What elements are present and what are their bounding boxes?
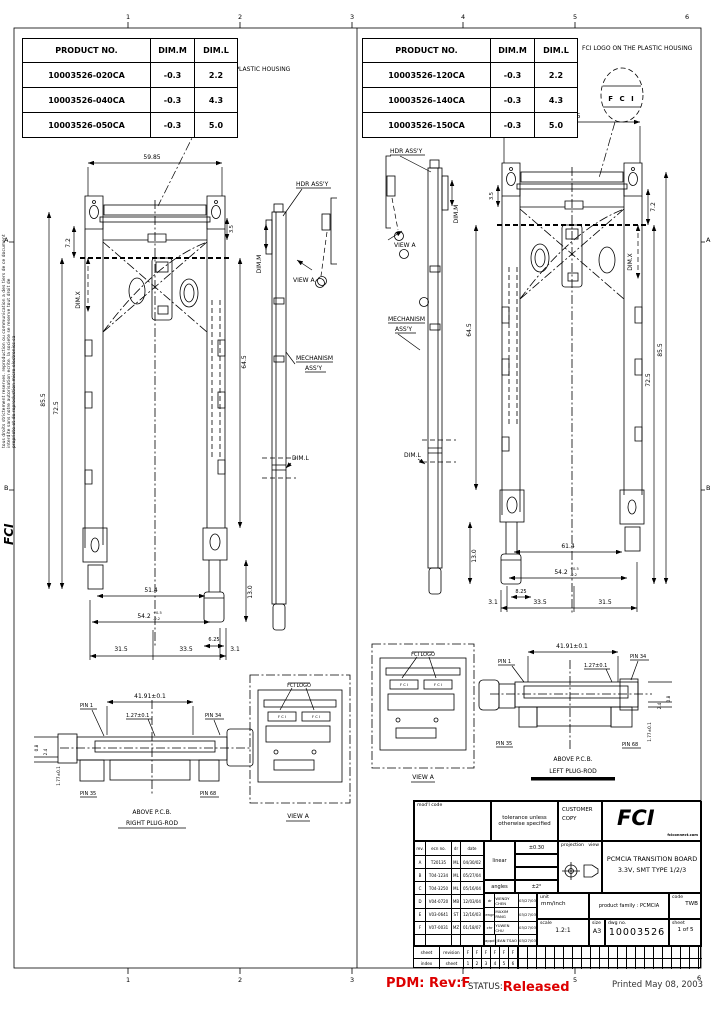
- drawing-title-cell: PCMCIA TRANSITION BOARD 3.3V, SMT TYPE 1…: [602, 841, 702, 893]
- cell-dim-m: -0.3: [491, 63, 535, 87]
- pin-label: PIN 68: [200, 791, 216, 797]
- grid-col-number: 2: [238, 13, 242, 21]
- fci-housing-mark: F C I: [400, 683, 408, 687]
- sheet-revision-row: sheet revision F F F F F F: [414, 946, 702, 958]
- grid-col-number: 2: [238, 976, 242, 984]
- table-row: 10003526-140CA -0.3 4.3: [363, 87, 577, 112]
- approval-row: appd JEAN TSAO 03/27/03: [485, 934, 536, 946]
- grid-row-letter: A: [705, 236, 711, 244]
- fci-housing-mark: F C I: [312, 715, 320, 719]
- rev-cell: E: [415, 909, 426, 921]
- strip-grid-filler: [518, 959, 702, 970]
- strip-rev: F: [491, 947, 500, 958]
- dim-label: DIM.L: [404, 452, 421, 459]
- cell-product: 10003526-120CA: [363, 63, 491, 87]
- mechanism-assy-label: MECHANISM: [296, 355, 333, 362]
- left-main-dimensions: 59.85 7.2 3.5 DIM.X 85.5 72.5 64.5 13.0 …: [40, 154, 254, 660]
- strip-label: sheet: [414, 947, 440, 958]
- dim-label: 72.5: [53, 401, 60, 415]
- dim-label: DIM.M: [453, 205, 460, 224]
- dim-label: 59.85: [143, 154, 160, 161]
- pin-label: PIN 35: [496, 741, 512, 747]
- strip-rev: F: [464, 947, 473, 958]
- left-view-a-detail: F C I F C I FCI LOGO VIEW A: [250, 675, 350, 821]
- linear-value: ±0.30: [516, 842, 557, 853]
- rev-cell: ML: [452, 869, 461, 881]
- right-side-view: HDR ASS'Y DIM.M VIEW A MECHANISM ASS'Y D…: [386, 148, 460, 594]
- rev-cell: ST: [452, 909, 461, 921]
- table-row: 10003526-040CA -0.3 4.3: [23, 87, 237, 112]
- printed-date: Printed May 08, 2003: [612, 980, 703, 990]
- rev-cell: ML: [452, 856, 461, 868]
- rev-cell: 12/16/03: [461, 909, 483, 921]
- table-row: 10003526-150CA -0.3 5.0: [363, 112, 577, 137]
- scale-cell: scale 1.2:1: [537, 919, 589, 946]
- dim-label: 31.5: [114, 646, 128, 653]
- dim-label: 6.25: [208, 637, 219, 643]
- cell-dim-l: 4.3: [195, 88, 237, 112]
- dim-label: 7.2: [650, 202, 657, 212]
- rev-cell: D: [415, 895, 426, 907]
- fci-logo-callout: FCI LOGO: [287, 683, 311, 689]
- dim-label: 3.5: [489, 192, 495, 200]
- hdr-assy-label: HDR ASS'Y: [390, 148, 423, 155]
- col-header-product: PRODUCT NO.: [363, 39, 491, 62]
- size-value: A3: [590, 927, 604, 935]
- dim-label: 1.27±0.1: [126, 713, 149, 719]
- grid-col-number: 5: [573, 13, 577, 21]
- dim-label: 33.5: [533, 599, 547, 606]
- strip-num: 1: [464, 959, 473, 970]
- caption: VIEW A: [287, 813, 310, 820]
- projection-cell: projection view: [558, 841, 602, 893]
- right-rod-detail: 41.91±0.1 PIN 1 1.27±0.1 PIN 34 PIN 35 P…: [479, 643, 672, 781]
- dim-tol: -0.2: [153, 617, 160, 621]
- rev-cell: ML: [452, 882, 461, 894]
- grid-col-number: 3: [350, 13, 354, 21]
- dim-label: DIM.L: [292, 455, 309, 462]
- dim-label: 85.5: [40, 393, 47, 407]
- cell-product: 10003526-150CA: [363, 113, 491, 137]
- size-cell: size A3: [589, 919, 605, 946]
- rev-cell: F: [415, 922, 426, 934]
- caption: RIGHT PLUG-ROD: [126, 820, 178, 827]
- revision-row: D V04-0720 MB 12/03/04: [415, 894, 483, 907]
- spec-table-left: PRODUCT NO. DIM.M DIM.L 10003526-020CA -…: [22, 38, 238, 138]
- approval-role: chr: [485, 922, 495, 934]
- dim-label: 64.5: [466, 323, 473, 337]
- strip-rev: F: [509, 947, 518, 958]
- revision-row: C T04-3250 ML 05/16/04: [415, 881, 483, 894]
- rev-cell: B: [415, 869, 426, 881]
- cell-dim-m: -0.3: [491, 113, 535, 137]
- pin-label: PIN 34: [205, 713, 221, 719]
- unit-cell: unit mm/inch: [537, 893, 589, 919]
- pin-label: PIN 1: [498, 659, 511, 665]
- col-header-dim-l: DIM.L: [535, 39, 577, 62]
- pin-label: PIN 35: [80, 791, 96, 797]
- model-code-label: mod'l code: [417, 803, 442, 808]
- view-label: view: [586, 842, 601, 849]
- caption: VIEW A: [412, 774, 435, 781]
- rev-cell: MB: [452, 895, 461, 907]
- left-side-view: HDR ASS'Y DIM.M VIEW A MECHANISM ASS'Y D…: [256, 181, 337, 630]
- col-header-product: PRODUCT NO.: [23, 39, 151, 62]
- drawing-title-line2: 3.3V, SMT TYPE 1/2/3: [603, 865, 701, 876]
- drawing-sheet: FCI LOGO ON THE PLASTIC HOUSING F C I: [0, 0, 720, 1012]
- unit-value: mm/inch: [538, 901, 588, 907]
- tolerance-heading-cell: tolerance unless otherwise specified: [491, 801, 558, 841]
- revision-row: E V03-0641 ST 12/16/03: [415, 908, 483, 921]
- cell-dim-m: -0.3: [151, 88, 195, 112]
- scale-value: 1.2:1: [538, 927, 588, 934]
- cell-dim-m: -0.3: [491, 88, 535, 112]
- grid-col-number: 6: [685, 13, 689, 21]
- revision-row: B T04-1234 ML 05/27/04: [415, 868, 483, 881]
- cell-dim-l: 5.0: [535, 113, 577, 137]
- dim-label: 61.4: [561, 543, 575, 550]
- dim-label: 31.5: [598, 599, 612, 606]
- cell-dim-l: 2.2: [195, 63, 237, 87]
- fci-logo: FCI: [617, 806, 655, 830]
- revision-row: A T20135 ML 04/30/02: [415, 855, 483, 868]
- caption: LEFT PLUG-ROD: [549, 768, 597, 775]
- fci-logo-callout: FCI LOGO: [411, 652, 435, 658]
- fci-housing-mark: F C I: [608, 95, 635, 103]
- dim-label: 3.1: [488, 599, 498, 606]
- fci-housing-mark: F C I: [278, 715, 286, 719]
- blank-cell: [515, 854, 558, 867]
- rev-cell: T04-3250: [426, 882, 452, 894]
- strip-num: 6: [509, 959, 518, 970]
- status-value: Released: [503, 980, 570, 995]
- rev-header: date: [461, 842, 483, 855]
- strip-rev: F: [482, 947, 491, 958]
- rev-cell: T20135: [426, 856, 452, 868]
- logo-note-label: FCI LOGO ON THE PLASTIC HOUSING: [582, 45, 693, 52]
- mechanism-assy-label: ASS'Y: [395, 326, 412, 333]
- spec-table-right: PRODUCT NO. DIM.M DIM.L 10003526-120CA -…: [362, 38, 578, 138]
- dwg-no-value: 10003526: [606, 927, 668, 938]
- model-code-cell: mod'l code: [414, 801, 491, 841]
- caption: ABOVE P.C.B.: [132, 809, 171, 816]
- dim-label: DIM.X: [75, 291, 82, 309]
- dim-label: 2.4: [657, 702, 662, 709]
- approval-date: 03/27/03: [519, 894, 536, 907]
- strip-rev: F: [473, 947, 482, 958]
- left-main-view: [80, 196, 232, 648]
- sheet-cell: sheet 1 of 5: [669, 919, 702, 946]
- rev-cell: V03-0641: [426, 909, 452, 921]
- dim-tol: +0.5: [570, 567, 579, 571]
- drawing-title-line1: PCMCIA TRANSITION BOARD: [603, 854, 701, 865]
- dim-label: DIM.M: [256, 255, 263, 274]
- dwg-no-cell: dwg no. 10003526: [605, 919, 669, 946]
- code-label: code: [670, 894, 701, 901]
- dim-label: 13.0: [247, 585, 254, 599]
- customer-copy-line: COPY: [562, 815, 598, 824]
- dim-label: 2.4: [43, 748, 48, 755]
- dim-label: 1.27±0.1: [584, 663, 607, 669]
- dim-label: 51.4: [144, 587, 158, 594]
- approval-name: YUWEN CHU: [495, 922, 519, 934]
- dim-label: 72.5: [645, 373, 652, 387]
- table-row: 10003526-120CA -0.3 2.2: [363, 62, 577, 87]
- dim-label: 0.8: [666, 695, 671, 702]
- angles-label-cell: angles: [484, 880, 515, 893]
- cell-product: 10003526-140CA: [363, 88, 491, 112]
- view-a-label: VIEW A: [394, 242, 417, 249]
- projection-symbol-icon: [561, 858, 601, 884]
- right-view-a-detail: F C I F C I FCI LOGO VIEW A: [372, 644, 474, 782]
- dim-label: 41.91±0.1: [134, 693, 166, 700]
- unit-label: unit: [538, 894, 588, 901]
- approval-name: JEAN TSAO: [496, 935, 519, 946]
- grid-col-number: 1: [126, 13, 130, 21]
- strip-num: 5: [500, 959, 509, 970]
- approval-date: 03/27/03: [519, 922, 536, 934]
- pin-label: PIN 34: [630, 654, 646, 660]
- revision-header-row: rev. ecn no. dr date: [415, 842, 483, 855]
- dim-label: 64.5: [241, 355, 248, 369]
- approval-role: appd: [485, 935, 496, 946]
- cell-dim-l: 2.2: [535, 63, 577, 87]
- strip-num: 4: [491, 959, 500, 970]
- dim-label: DIM.X: [627, 253, 634, 271]
- angles-label: angles: [485, 881, 514, 892]
- grid-row-letter: B: [3, 484, 9, 492]
- dim-label: 8.25: [515, 589, 526, 595]
- product-family-cell: product family : PCMCIA: [589, 893, 669, 919]
- dim-label: 33.5: [179, 646, 193, 653]
- dim-label: 85.5: [657, 343, 664, 357]
- grid-col-number: 1: [126, 976, 130, 984]
- rev-header: rev.: [415, 842, 426, 855]
- tolerance-heading: tolerance unless otherwise specified: [492, 802, 557, 840]
- code-cell: code TWB: [669, 893, 702, 919]
- pin-label: PIN 1: [80, 703, 93, 709]
- customer-copy-cell: CUSTOMER COPY: [558, 801, 602, 841]
- col-header-dim-m: DIM.M: [151, 39, 195, 62]
- dim-label: 54.2: [554, 569, 568, 576]
- dim-label: 54.2: [137, 613, 151, 620]
- approval-row: engr MAXIM PANG 03/27/03: [485, 907, 536, 920]
- strip-num: 3: [482, 959, 491, 970]
- strip-grid-filler: [518, 947, 702, 958]
- dim-label: 3.5: [229, 225, 235, 233]
- cell-dim-m: -0.3: [151, 113, 195, 137]
- dim-label: 0.8: [34, 744, 39, 751]
- dim-tol: -0.2: [570, 573, 577, 577]
- grid-row-letter: B: [705, 484, 711, 492]
- strip-label: revision: [440, 947, 464, 958]
- dim-label: 41.91±0.1: [556, 643, 588, 650]
- projection-label: projection: [559, 842, 586, 849]
- dim-label: 1.77±0.1: [647, 722, 652, 742]
- hdr-assy-label: HDR ASS'Y: [296, 181, 329, 188]
- fci-housing-mark: F C I: [434, 683, 442, 687]
- table-row: 10003526-020CA -0.3 2.2: [23, 62, 237, 87]
- grid-col-number: 4: [461, 13, 465, 21]
- sheet-label: sheet: [670, 920, 701, 927]
- approval-date: 03/27/03: [519, 935, 536, 946]
- mechanism-assy-label: MECHANISM: [388, 316, 425, 323]
- approval-role: engr: [485, 908, 495, 920]
- pin-label: PIN 68: [622, 742, 638, 748]
- table-header-row: PRODUCT NO. DIM.M DIM.L: [23, 39, 237, 62]
- col-header-dim-l: DIM.L: [195, 39, 237, 62]
- cell-dim-m: -0.3: [151, 63, 195, 87]
- table-row: 10003526-050CA -0.3 5.0: [23, 112, 237, 137]
- rev-header: ecn no.: [426, 842, 452, 855]
- code-value: TWB: [670, 901, 701, 907]
- right-logo-note: FCI LOGO ON THE PLASTIC HOUSING F C I: [582, 45, 693, 178]
- cell-dim-l: 5.0: [195, 113, 237, 137]
- approval-name: WENDY CHEN: [495, 894, 519, 907]
- fci-logo-cell: FCI fciconnect.com: [602, 801, 702, 841]
- revision-row: F V07-0031 MZ 01/18/07: [415, 921, 483, 934]
- rev-cell: 12/03/04: [461, 895, 483, 907]
- revision-table: rev. ecn no. dr date A T20135 ML 04/30/0…: [414, 841, 484, 946]
- dim-label: 1.77±0.1: [56, 766, 61, 786]
- margin-legal-note: propriete et de reproduction micro elect…: [12, 335, 17, 448]
- index-sheet-row: index sheet 1 2 3 4 5 6: [414, 958, 702, 970]
- dim-label: 3.1: [230, 646, 240, 653]
- linear-value-cell: ±0.30: [515, 841, 558, 854]
- margin-fci-logo: FCI: [2, 524, 16, 545]
- size-label: size: [590, 920, 604, 927]
- rev-cell: A: [415, 856, 426, 868]
- strip-label: index: [414, 959, 440, 970]
- angles-value: ±2°: [516, 881, 557, 892]
- cell-product: 10003526-050CA: [23, 113, 151, 137]
- sheet-index-strip: sheet revision F F F F F F index sheet 1…: [414, 946, 702, 969]
- grid-col-number: 5: [573, 976, 577, 984]
- grid-col-number: 3: [350, 976, 354, 984]
- pdm-revision-status: PDM: Rev:F: [386, 976, 470, 991]
- fci-logo-subtext: fciconnect.com: [667, 833, 698, 837]
- angles-value-cell: ±2°: [515, 880, 558, 893]
- rev-cell: V04-0720: [426, 895, 452, 907]
- rev-cell: MZ: [452, 922, 461, 934]
- rev-cell: 01/18/07: [461, 922, 483, 934]
- revision-row-empty: [415, 934, 483, 946]
- rev-cell: V07-0031: [426, 922, 452, 934]
- strip-label: sheet: [440, 959, 464, 970]
- cell-product: 10003526-040CA: [23, 88, 151, 112]
- scale-label: scale: [538, 920, 588, 927]
- cell-product: 10003526-020CA: [23, 63, 151, 87]
- customer-copy-line: CUSTOMER: [562, 806, 598, 815]
- dwg-no-label: dwg no.: [606, 920, 668, 927]
- dim-tol: +0.5: [153, 611, 162, 615]
- approval-role: dr: [485, 894, 495, 907]
- approval-name: MAXIM PANG: [495, 908, 519, 920]
- rev-header: dr: [452, 842, 461, 855]
- dim-label: 13.0: [471, 549, 478, 563]
- release-status: STATUS:Released: [468, 976, 570, 995]
- col-header-dim-m: DIM.M: [491, 39, 535, 62]
- sheet-value: 1 of 5: [670, 927, 701, 933]
- view-a-label: VIEW A: [293, 277, 316, 284]
- rev-cell: 05/27/04: [461, 869, 483, 881]
- mechanism-assy-label: ASS'Y: [305, 365, 322, 372]
- rev-cell: C: [415, 882, 426, 894]
- left-rod-detail: 41.91±0.1 PIN 1 1.27±0.1 PIN 34 PIN 35 P…: [34, 693, 253, 828]
- strip-num: 2: [473, 959, 482, 970]
- linear-label-cell: linear: [484, 841, 515, 880]
- rev-cell: T04-1234: [426, 869, 452, 881]
- approvals-table: dr WENDY CHEN 03/27/03 engr MAXIM PANG 0…: [484, 893, 537, 946]
- cell-dim-l: 4.3: [535, 88, 577, 112]
- linear-label: linear: [485, 842, 514, 879]
- table-header-row: PRODUCT NO. DIM.M DIM.L: [363, 39, 577, 62]
- product-family-label: product family : PCMCIA: [590, 894, 668, 918]
- approval-date: 03/27/03: [519, 908, 536, 920]
- status-label: STATUS:: [468, 982, 503, 992]
- dim-label: 7.2: [65, 238, 72, 248]
- rev-cell: 04/30/02: [461, 856, 483, 868]
- title-block: mod'l code tolerance unless otherwise sp…: [413, 800, 701, 968]
- strip-rev: F: [500, 947, 509, 958]
- rev-cell: 05/16/04: [461, 882, 483, 894]
- approval-row: chr YUWEN CHU 03/27/03: [485, 921, 536, 934]
- caption: ABOVE P.C.B.: [553, 756, 592, 763]
- approval-row: dr WENDY CHEN 03/27/03: [485, 894, 536, 907]
- blank-cell: [515, 867, 558, 880]
